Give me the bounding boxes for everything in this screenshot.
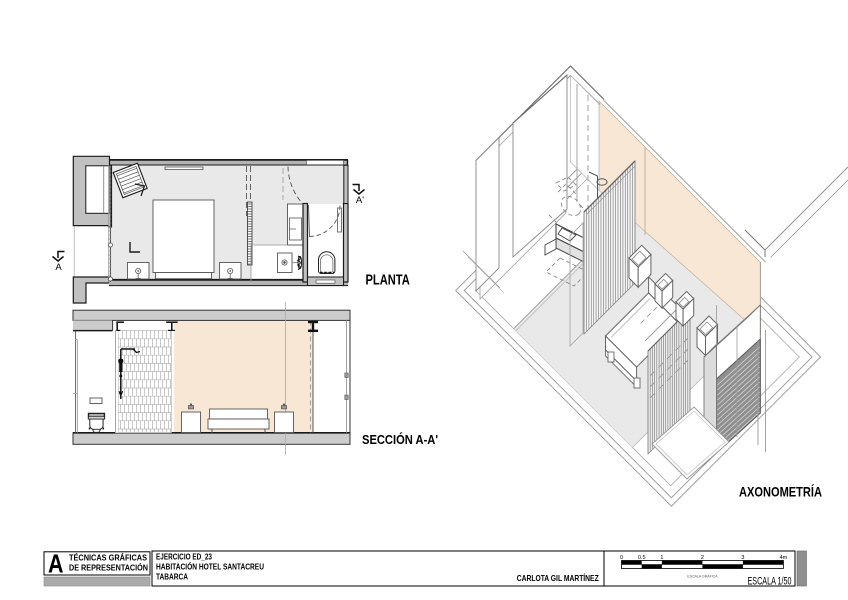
svg-text:4m: 4m [780, 555, 788, 561]
svg-text:CARLOTA GIL MARTÍNEZ: CARLOTA GIL MARTÍNEZ [517, 573, 599, 583]
svg-text:ESCALA GRÁFICA: ESCALA GRÁFICA [687, 575, 718, 579]
svg-text:ESCALA 1/50: ESCALA 1/50 [748, 576, 792, 588]
svg-text:A': A' [356, 195, 364, 206]
svg-text:0.5: 0.5 [638, 555, 646, 561]
svg-text:TABARCA: TABARCA [156, 573, 188, 582]
svg-text:PLANTA: PLANTA [366, 272, 411, 288]
svg-text:AXONOMETRÍA: AXONOMETRÍA [739, 484, 822, 500]
svg-text:2: 2 [701, 555, 704, 561]
svg-text:TÉCNICAS GRÁFICAS: TÉCNICAS GRÁFICAS [69, 553, 147, 563]
svg-text:SECCIÓN A-A': SECCIÓN A-A' [362, 432, 438, 447]
svg-text:A: A [55, 262, 62, 273]
svg-text:DE REPRESENTACIÓN: DE REPRESENTACIÓN [69, 562, 148, 573]
svg-text:A: A [48, 549, 64, 579]
svg-text:1: 1 [660, 555, 663, 561]
svg-text:EJERCICIO ED_23: EJERCICIO ED_23 [156, 553, 212, 562]
svg-text:3: 3 [741, 555, 744, 561]
svg-text:0: 0 [620, 555, 623, 561]
svg-text:HABITACIÓN HOTEL SANTACREU: HABITACIÓN HOTEL SANTACREU [156, 561, 264, 572]
